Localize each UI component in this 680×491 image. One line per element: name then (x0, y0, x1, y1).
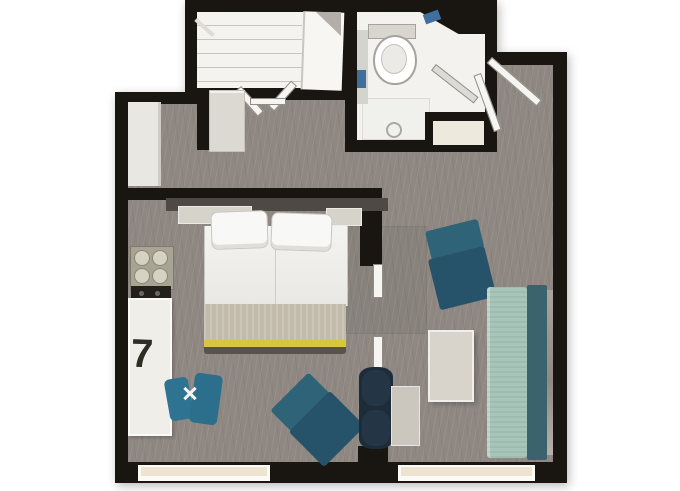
wall-left (115, 92, 128, 483)
wall-mirror-strip (547, 290, 553, 455)
unit-number-label: 7 (130, 334, 154, 375)
window-glass-right (401, 467, 532, 476)
cooktop (130, 246, 174, 290)
burner (134, 250, 150, 266)
floor-plan-image: 7 (0, 0, 680, 491)
butterfly-stool (165, 370, 221, 426)
wall-tv-partition-stub (358, 446, 388, 466)
side-table (428, 330, 474, 402)
tv-unit-lobe (362, 370, 390, 406)
burner (152, 250, 168, 266)
shower-drain (386, 122, 402, 138)
wall-right (553, 52, 567, 483)
wall-fridge-stub (197, 88, 209, 150)
window-glass-left (141, 467, 267, 476)
control-knob (139, 291, 144, 296)
storage-niche-shelf (433, 121, 484, 145)
bathroom-fixture-column (357, 30, 368, 104)
sliding-door-post (373, 264, 383, 298)
bed-foot-frame (204, 347, 346, 354)
hall-console-shelf (128, 102, 161, 186)
sofa-daybed-seat (487, 287, 527, 458)
pillow-left (210, 210, 268, 250)
control-knob (155, 291, 160, 296)
burner (152, 268, 168, 284)
toilet-bowl (373, 35, 417, 85)
tall-cabinet-fridge (209, 90, 245, 152)
apartment-floor-plan: 7 (0, 0, 680, 491)
tv-unit-lobe (362, 410, 390, 446)
bed-blanket (204, 304, 346, 342)
towel-rail-blue (357, 70, 366, 88)
toilet-bowl-inner (381, 44, 407, 74)
tv-side-panel (391, 386, 420, 446)
tv-media-unit (359, 367, 393, 449)
pillow-right (270, 212, 332, 252)
wardrobe-shelves (197, 12, 302, 88)
burner (134, 268, 150, 284)
closet-threshold (250, 98, 286, 105)
sofa-daybed-back (527, 285, 547, 460)
